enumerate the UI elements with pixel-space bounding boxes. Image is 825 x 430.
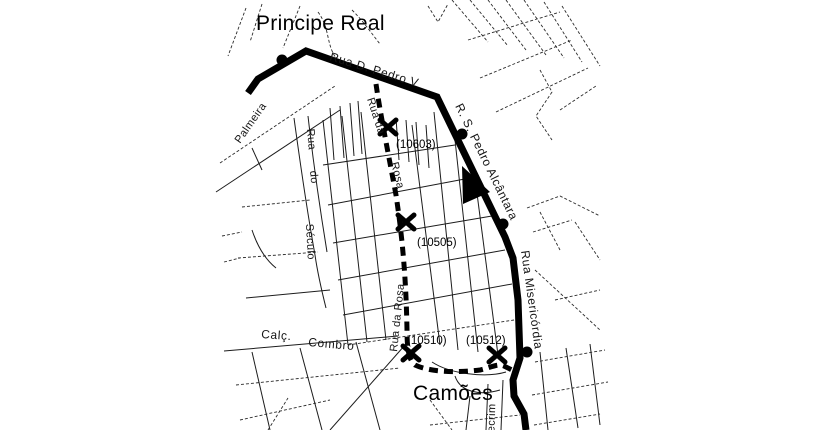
stop-label-10512: (10512): [466, 335, 506, 347]
street-label-rua-do-seculo-a: Rua: [304, 128, 318, 151]
stop-dot-misericordia-lower: [522, 347, 533, 358]
street-label-rua-do-seculo-b: do: [307, 170, 320, 184]
stop-label-10510: (10510): [407, 335, 447, 347]
street-label-rua-da-rosa-lower: Rua da Rosa: [388, 282, 407, 352]
stop-label-10505: (10505): [417, 237, 457, 249]
map-canvas: (10603) (10505) (10510) (10512) Principe…: [0, 0, 825, 430]
street-label-rua-do-seculo-c: Século: [303, 224, 317, 261]
streets-west: [216, 86, 340, 308]
streets-bottom-left: [224, 336, 405, 430]
stop-dot-misericordia-upper: [498, 219, 509, 230]
street-label-rua-d-pedro-v: Rua D. Pedro V: [328, 49, 421, 89]
street-label-calcada: Calç.: [261, 327, 292, 343]
tram-route-line: [248, 51, 526, 430]
streets-bottom-right: [532, 344, 608, 430]
area-label-camoes: Camões: [413, 382, 493, 405]
street-label-palmeira: Palmeira: [233, 100, 270, 145]
street-labels: Rua D. Pedro V R. S. Pedro Alcântara Rua…: [233, 49, 546, 430]
stop-label-10603: (10603): [396, 139, 436, 151]
street-label-alecrim: Alecrim: [485, 403, 498, 430]
street-label-combro: Combro: [308, 335, 355, 353]
area-label-principe-real: Principe Real: [256, 12, 385, 35]
stop-dot-principe-real: [277, 55, 288, 66]
street-map: (10603) (10505) (10510) (10512) Principe…: [0, 0, 825, 430]
street-label-rua-da-rosa-upper-a: Rua da: [364, 96, 387, 136]
